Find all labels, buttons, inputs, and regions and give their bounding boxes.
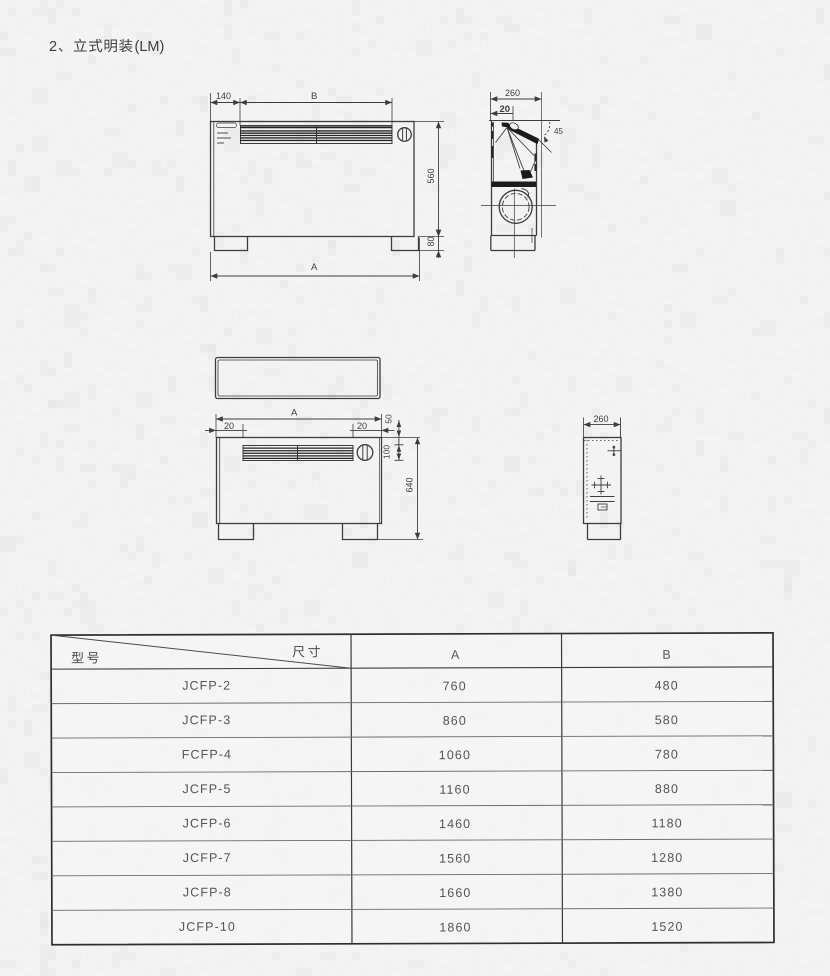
svg-text:JCFP-8: JCFP-8 bbox=[183, 885, 232, 899]
svg-text:1460: 1460 bbox=[439, 817, 471, 831]
svg-text:A: A bbox=[451, 648, 460, 662]
svg-text:B: B bbox=[662, 648, 670, 662]
svg-text:1560: 1560 bbox=[439, 852, 471, 866]
svg-text:JCFP-3: JCFP-3 bbox=[182, 713, 231, 727]
svg-text:1860: 1860 bbox=[439, 920, 471, 934]
svg-text:100: 100 bbox=[382, 445, 392, 459]
svg-text:20: 20 bbox=[224, 421, 234, 431]
svg-text:1280: 1280 bbox=[651, 851, 683, 865]
svg-text:JCFP-6: JCFP-6 bbox=[183, 816, 232, 830]
svg-text:1660: 1660 bbox=[439, 886, 471, 900]
svg-text:20: 20 bbox=[357, 421, 367, 431]
svg-text:1060: 1060 bbox=[439, 748, 471, 762]
svg-text:1180: 1180 bbox=[651, 816, 682, 830]
svg-text:80: 80 bbox=[426, 236, 436, 246]
svg-text:FCFP-4: FCFP-4 bbox=[182, 747, 232, 761]
svg-text:JCFP-2: JCFP-2 bbox=[182, 679, 231, 693]
svg-text:580: 580 bbox=[655, 713, 679, 727]
svg-text:2: 2 bbox=[49, 39, 57, 55]
svg-text:50: 50 bbox=[384, 414, 394, 424]
svg-text:480: 480 bbox=[655, 679, 679, 693]
svg-text:20: 20 bbox=[500, 104, 511, 115]
svg-text:780: 780 bbox=[655, 747, 679, 761]
svg-text:260: 260 bbox=[505, 88, 520, 98]
svg-text:JCFP-10: JCFP-10 bbox=[179, 920, 236, 934]
svg-text:880: 880 bbox=[655, 782, 679, 796]
svg-text:B: B bbox=[311, 91, 317, 102]
svg-text:1380: 1380 bbox=[651, 885, 683, 899]
svg-text:640: 640 bbox=[405, 477, 415, 492]
svg-text:A: A bbox=[291, 408, 298, 419]
svg-text:560: 560 bbox=[426, 168, 436, 183]
svg-text:260: 260 bbox=[594, 414, 609, 424]
svg-text:860: 860 bbox=[443, 714, 467, 728]
svg-text:45: 45 bbox=[554, 127, 563, 136]
svg-text:140: 140 bbox=[216, 91, 231, 101]
svg-text:(LM): (LM) bbox=[135, 39, 165, 55]
svg-text:JCFP-7: JCFP-7 bbox=[183, 851, 232, 865]
svg-text:JCFP-5: JCFP-5 bbox=[182, 782, 231, 796]
svg-text:1160: 1160 bbox=[439, 783, 470, 797]
svg-text:A: A bbox=[311, 262, 318, 273]
svg-text:760: 760 bbox=[443, 679, 467, 693]
svg-text:1520: 1520 bbox=[651, 920, 683, 934]
